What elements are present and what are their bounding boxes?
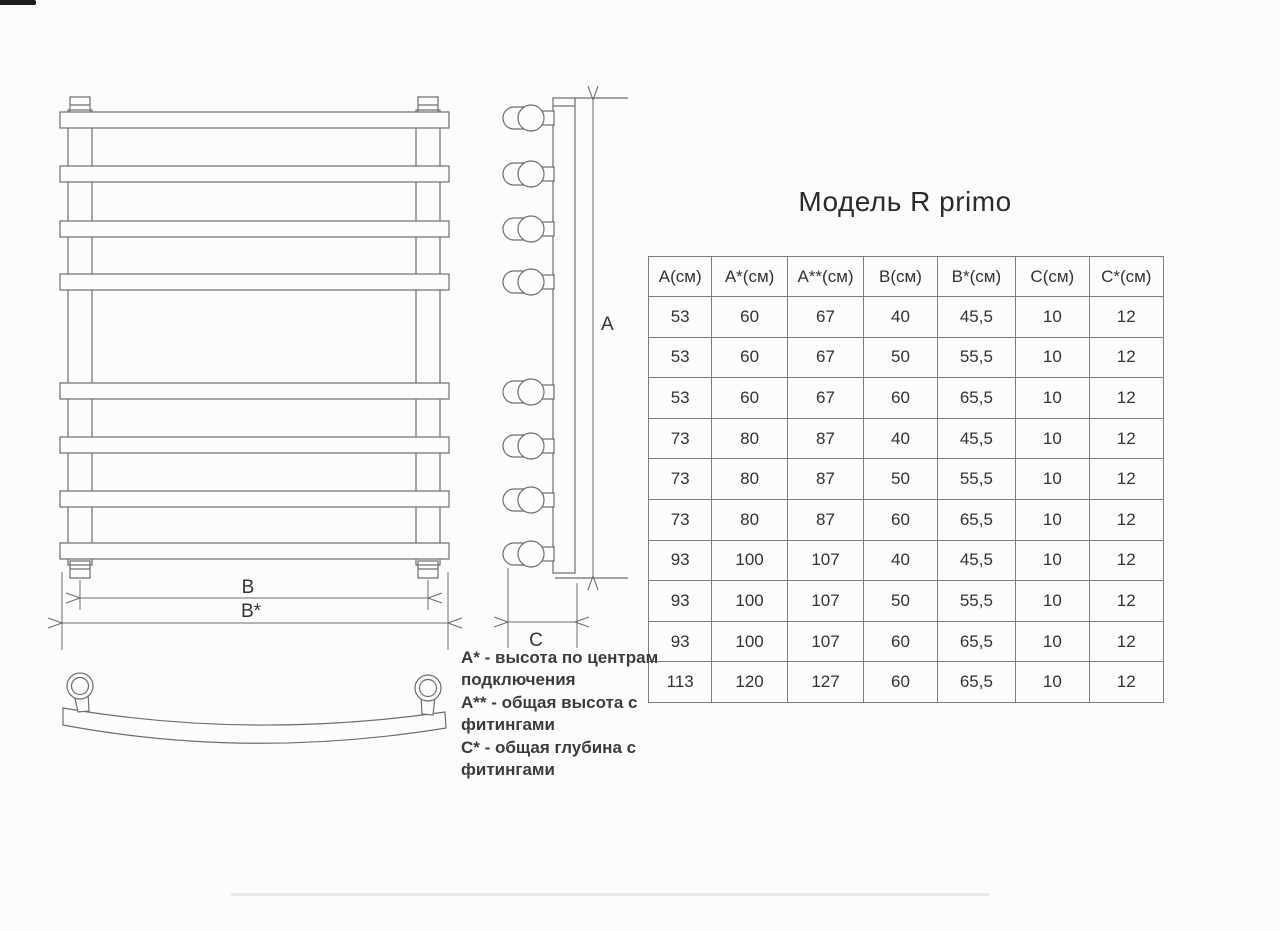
table-cell: 45,5 [937,418,1015,459]
table-cell: 67 [787,337,863,378]
table-cell: 12 [1089,337,1163,378]
table-cell: 73 [649,499,712,540]
table-header-cell: В*(см) [937,257,1015,297]
table-cell: 127 [787,662,863,703]
table-cell: 93 [649,581,712,622]
table-cell: 80 [712,459,787,500]
table-cell: 87 [787,499,863,540]
table-cell: 10 [1016,662,1089,703]
side-bar-fittings [503,105,554,567]
table-cell: 10 [1016,581,1089,622]
table-row: 5360675055,51012 [649,337,1164,378]
table-cell: 60 [864,621,937,662]
table-cell: 107 [787,540,863,581]
table-cell: 12 [1089,581,1163,622]
legend-line: А* - высота по центрам [461,647,671,669]
table-cell: 100 [712,581,787,622]
table-cell: 12 [1089,418,1163,459]
legend-line: А** - общая высота с [461,692,671,714]
table-cell: 10 [1016,621,1089,662]
table-cell: 45,5 [937,297,1015,338]
table-row: 7380875055,51012 [649,459,1164,500]
table-cell: 55,5 [937,337,1015,378]
dimension-legend: А* - высота по центрамподключенияА** - о… [461,647,671,781]
front-view [60,97,449,578]
table-cell: 55,5 [937,459,1015,500]
table-cell: 12 [1089,540,1163,581]
side-view [503,98,628,578]
legend-line: подключения [461,669,671,691]
table-cell: 73 [649,459,712,500]
table-cell: 55,5 [937,581,1015,622]
table-row: 931001075055,51012 [649,581,1164,622]
top-view-ring-left [67,673,93,699]
table-cell: 60 [864,499,937,540]
table-cell: 65,5 [937,621,1015,662]
top-view-ring-right [415,675,441,701]
table-cell: 100 [712,540,787,581]
table-row: 7380874045,51012 [649,418,1164,459]
table-cell: 40 [864,297,937,338]
table-cell: 120 [712,662,787,703]
dim-label-b-star: B* [241,601,262,622]
legend-line: фитингами [461,759,671,781]
table-cell: 12 [1089,499,1163,540]
table-cell: 12 [1089,459,1163,500]
table-cell: 100 [712,621,787,662]
table-cell: 10 [1016,540,1089,581]
table-cell: 87 [787,459,863,500]
table-cell: 12 [1089,378,1163,419]
table-header-cell: А(см) [649,257,712,297]
table-cell: 60 [712,378,787,419]
top-view-curved-bar [63,708,446,743]
table-cell: 40 [864,540,937,581]
table-cell: 10 [1016,297,1089,338]
table-cell: 60 [864,662,937,703]
table-cell: 67 [787,378,863,419]
table-header-cell: С(см) [1016,257,1089,297]
table-cell: 65,5 [937,378,1015,419]
dim-label-a: A [601,314,614,335]
table-cell: 12 [1089,662,1163,703]
top-view [63,673,446,743]
table-cell: 80 [712,499,787,540]
dimensions-table-body: 5360674045,510125360675055,5101253606760… [649,297,1164,703]
table-cell: 53 [649,337,712,378]
dimensions-table: А(см)А*(см)А**(см)В(см)В*(см)С(см)С*(см)… [648,256,1164,703]
table-row: 931001076065,51012 [649,621,1164,662]
table-row: 7380876065,51012 [649,499,1164,540]
table-cell: 53 [649,297,712,338]
table-cell: 67 [787,297,863,338]
table-cell: 12 [1089,621,1163,662]
table-cell: 60 [712,337,787,378]
table-header-cell: А*(см) [712,257,787,297]
legend-line: С* - общая глубина с [461,737,671,759]
front-bottom-stub-right [418,561,438,578]
front-bottom-stub-left [70,561,90,578]
table-cell: 10 [1016,378,1089,419]
table-cell: 50 [864,459,937,500]
model-title: Модель R primo [760,186,1050,218]
table-cell: 65,5 [937,662,1015,703]
table-cell: 60 [864,378,937,419]
table-header-cell: А**(см) [787,257,863,297]
table-cell: 73 [649,418,712,459]
table-cell: 87 [787,418,863,459]
table-cell: 65,5 [937,499,1015,540]
table-cell: 12 [1089,297,1163,338]
table-cell: 53 [649,378,712,419]
legend-line: фитингами [461,714,671,736]
side-post [553,98,575,573]
table-cell: 10 [1016,499,1089,540]
table-row: 1131201276065,51012 [649,662,1164,703]
table-cell: 10 [1016,459,1089,500]
table-cell: 10 [1016,337,1089,378]
table-header-cell: В(см) [864,257,937,297]
table-row: 5360676065,51012 [649,378,1164,419]
table-cell: 45,5 [937,540,1015,581]
table-cell: 60 [712,297,787,338]
dim-label-b: B [242,577,255,598]
front-towel-bars [60,112,449,559]
table-cell: 80 [712,418,787,459]
table-cell: 107 [787,581,863,622]
table-cell: 50 [864,337,937,378]
table-cell: 93 [649,540,712,581]
dimensions-table-header: А(см)А*(см)А**(см)В(см)В*(см)С(см)С*(см) [649,257,1164,297]
table-cell: 107 [787,621,863,662]
table-cell: 10 [1016,418,1089,459]
table-row: 5360674045,51012 [649,297,1164,338]
table-header-cell: С*(см) [1089,257,1163,297]
table-cell: 40 [864,418,937,459]
table-row: 931001074045,51012 [649,540,1164,581]
table-cell: 50 [864,581,937,622]
